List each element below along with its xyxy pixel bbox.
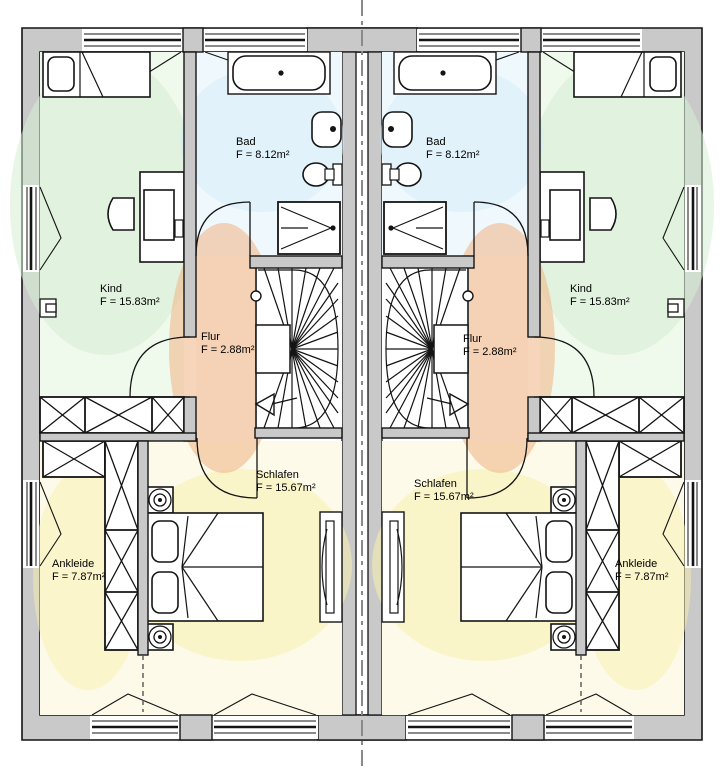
party-wall-right-leaf <box>368 52 382 715</box>
room-name: Ankleide <box>615 558 669 571</box>
room-label-kind-right: Kind F = 15.83m² <box>570 283 630 309</box>
room-area: F = 2.88m² <box>463 346 517 359</box>
room-name: Bad <box>236 136 290 149</box>
unit-left <box>10 28 352 740</box>
room-label-schlafen-left: Schlafen F = 15.67m² <box>256 469 316 495</box>
room-name: Ankleide <box>52 558 106 571</box>
room-label-kind-left: Kind F = 15.83m² <box>100 283 160 309</box>
room-area: F = 15.83m² <box>570 296 630 309</box>
room-label-ankleide-left: Ankleide F = 7.87m² <box>52 558 106 584</box>
room-name: Flur <box>201 331 255 344</box>
floor-plan-drawing <box>0 0 724 767</box>
floor-plan: Kind F = 15.83m² Bad F = 8.12m² Flur F =… <box>0 0 724 767</box>
room-name: Schlafen <box>414 478 474 491</box>
room-area: F = 8.12m² <box>426 149 480 162</box>
room-area: F = 15.67m² <box>414 491 474 504</box>
room-area: F = 2.88m² <box>201 344 255 357</box>
room-name: Kind <box>570 283 630 296</box>
room-label-bad-left: Bad F = 8.12m² <box>236 136 290 162</box>
room-area: F = 15.67m² <box>256 482 316 495</box>
room-label-flur-left: Flur F = 2.88m² <box>201 331 255 357</box>
room-name: Schlafen <box>256 469 316 482</box>
room-name: Bad <box>426 136 480 149</box>
room-area: F = 15.83m² <box>100 296 160 309</box>
room-label-ankleide-right: Ankleide F = 7.87m² <box>615 558 669 584</box>
room-area: F = 7.87m² <box>52 571 106 584</box>
room-name: Kind <box>100 283 160 296</box>
room-area: F = 7.87m² <box>615 571 669 584</box>
room-label-bad-right: Bad F = 8.12m² <box>426 136 480 162</box>
room-name: Flur <box>463 333 517 346</box>
room-label-schlafen-right: Schlafen F = 15.67m² <box>414 478 474 504</box>
room-label-flur-right: Flur F = 2.88m² <box>463 333 517 359</box>
room-area: F = 8.12m² <box>236 149 290 162</box>
unit-right <box>372 28 714 740</box>
party-wall-left-leaf <box>342 52 356 715</box>
